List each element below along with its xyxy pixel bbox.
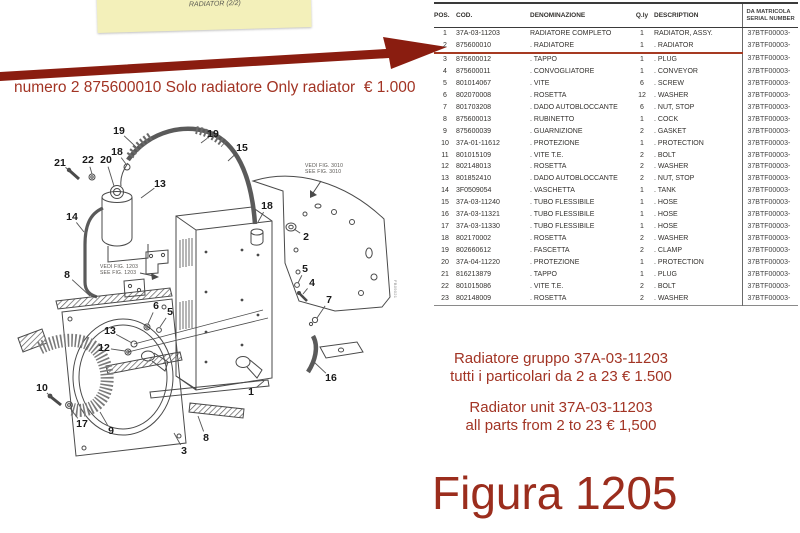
- table-row: 6802070008. ROSETTA12. WASHER37BTF00003-: [434, 90, 798, 102]
- table-row: 137A-03-11203RADIATORE COMPLETO1RADIATOR…: [434, 28, 798, 40]
- see-fig-1203-note: VEDI FIG. 1203 SEE FIG. 1203: [100, 264, 138, 276]
- table-row: 8875600013. RUBINETTO1. COCK37BTF00003-: [434, 114, 798, 126]
- drawing-number-side-label: FB09021: [393, 280, 398, 298]
- table-row: 1037A-01-11612. PROTEZIONE1. PROTECTION3…: [434, 138, 798, 150]
- diagram-callout: 1: [248, 386, 254, 398]
- parts-table: POS. COD. DENOMINAZIONE Q.ly DESCRIPTION…: [434, 2, 798, 306]
- diagram-callout: 14: [66, 211, 78, 223]
- table-row: 11801015109. VITE T.E.2. BOLT37BTF00003-: [434, 150, 798, 162]
- price-annotation-radiator: numero 2 875600010 Solo radiatore Only r…: [14, 79, 416, 97]
- note-it-line2: tutti i particolari da 2 a 23 € 1.500: [428, 368, 694, 386]
- table-row: 2037A-04-11220. PROTEZIONE1. PROTECTION3…: [434, 257, 798, 269]
- diagram-callout: 2: [303, 231, 309, 243]
- table-row: 1737A-03-11330. TUBO FLESSIBILE1. HOSE37…: [434, 221, 798, 233]
- header-denominazione: DENOMINAZIONE: [530, 3, 630, 28]
- diagram-callout: 13: [104, 325, 116, 337]
- table-row: 4875600011. CONVOGLIATORE1. CONVEYOR37BT…: [434, 66, 798, 78]
- see-fig-3010-note: VEDI FIG. 3010 SEE FIG. 3010: [305, 163, 343, 175]
- table-row: 3875600012. TAPPO1. PLUG37BTF00003-: [434, 53, 798, 66]
- header-pos: POS.: [434, 3, 456, 28]
- diagram-callout: 7: [326, 294, 332, 306]
- diagram-callout: 16: [325, 372, 337, 384]
- diagram-callout: 18: [111, 146, 123, 158]
- table-row: 1637A-03-11321. TUBO FLESSIBILE1. HOSE37…: [434, 209, 798, 221]
- diagram-callout: 18: [261, 200, 273, 212]
- figure-title: Figura 1205: [432, 466, 678, 520]
- diagram-callout: 19: [207, 128, 219, 140]
- diagram-callout: 10: [36, 382, 48, 394]
- diagram-callout: 13: [154, 178, 166, 190]
- table-row: 1537A-03-11240. TUBO FLESSIBILE1. HOSE37…: [434, 197, 798, 209]
- table-row: 22801015086. VITE T.E.2. BOLT37BTF00003-: [434, 281, 798, 293]
- note-en-line1: Radiator unit 37A-03-11203: [428, 399, 694, 417]
- diagram-callout: 8: [203, 432, 209, 444]
- price-notes: Radiatore gruppo 37A-03-11203 tutti i pa…: [428, 350, 694, 448]
- diagram-callout: 8: [64, 269, 70, 281]
- table-row: 12802148013. ROSETTA2. WASHER37BTF00003-: [434, 161, 798, 173]
- diagram-callout: 3: [181, 445, 187, 457]
- callout-leader-lines: [47, 136, 326, 445]
- parts-table-header: POS. COD. DENOMINAZIONE Q.ly DESCRIPTION…: [434, 3, 798, 28]
- diagram-callout: 15: [236, 142, 248, 154]
- table-row: 5801014067. VITE6. SCREW37BTF00003-: [434, 78, 798, 90]
- table-row: 23802148009. ROSETTA2. WASHER37BTF00003-: [434, 293, 798, 305]
- diagram-callout: 19: [113, 125, 125, 137]
- diagram-callout: 12: [98, 342, 110, 354]
- table-row: 7801703208. DADO AUTOBLOCCANTE6. NUT, ST…: [434, 102, 798, 114]
- table-row: 18802170002. ROSETTA2. WASHER37BTF00003-: [434, 233, 798, 245]
- table-row: 2875600010. RADIATORE1. RADIATOR37BTF000…: [434, 40, 798, 53]
- header-serial: DA MATRICOLA SERIAL NUMBER: [742, 3, 798, 28]
- yellow-note-fragment: FIG. 1205 RADIATORE (2/2) RADIATOR (2/2): [96, 0, 311, 33]
- header-description: DESCRIPTION: [654, 3, 742, 28]
- note-line-2: RADIATOR (2/2): [189, 0, 241, 8]
- diagram-callout: 22: [82, 154, 94, 166]
- header-cod: COD.: [456, 3, 530, 28]
- diagram-callout: 6: [153, 300, 159, 312]
- diagram-callout: 9: [108, 425, 114, 437]
- diagram-callout: 5: [167, 306, 173, 318]
- table-row: 143F0509054. VASCHETTA1. TANK37BTF00003-: [434, 185, 798, 197]
- diagram-callout: 21: [54, 157, 66, 169]
- table-row: 19802660612. FASCETTA2. CLAMP37BTF00003-: [434, 245, 798, 257]
- diagram-callout: 17: [76, 418, 88, 430]
- red-arrow: [0, 37, 447, 81]
- diagram-callout: 5: [302, 263, 308, 275]
- note-en-line2: all parts from 2 to 23 € 1,500: [428, 417, 694, 435]
- parts-table-body: 137A-03-11203RADIATORE COMPLETO1RADIATOR…: [434, 28, 798, 306]
- header-qty: Q.ly: [630, 3, 654, 28]
- table-row: 21816213879. TAPPO1. PLUG37BTF00003-: [434, 269, 798, 281]
- table-row: 13801852410. DADO AUTOBLOCCANTE2. NUT, S…: [434, 173, 798, 185]
- table-row: 9875600039. GUARNIZIONE2. GASKET37BTF000…: [434, 126, 798, 138]
- diagram-callout: 20: [100, 154, 112, 166]
- note-it-line1: Radiatore gruppo 37A-03-11203: [428, 350, 694, 368]
- diagram-callout: 4: [309, 277, 315, 289]
- catalog-page: FIG. 1205 RADIATORE (2/2) RADIATOR (2/2)…: [0, 0, 800, 533]
